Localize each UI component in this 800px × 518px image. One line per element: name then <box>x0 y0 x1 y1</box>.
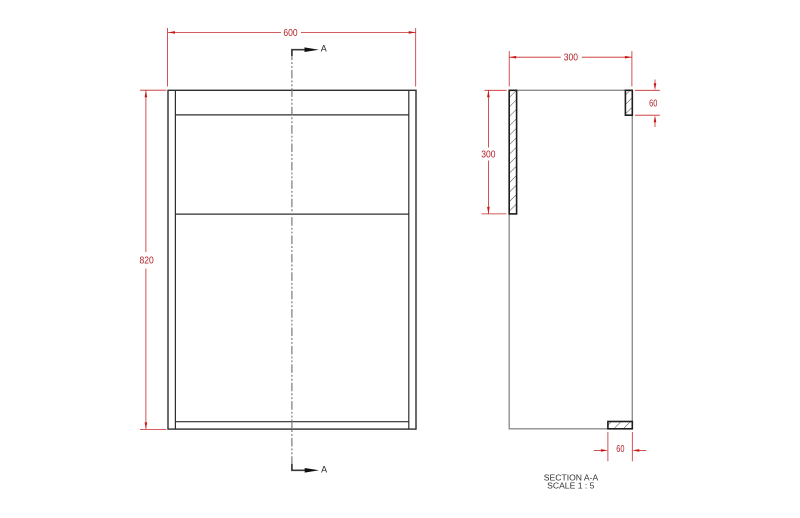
svg-text:SCALE 1 : 5: SCALE 1 : 5 <box>547 481 595 491</box>
svg-text:600: 600 <box>283 28 298 39</box>
svg-text:A: A <box>321 44 327 54</box>
svg-text:820: 820 <box>140 256 155 267</box>
svg-text:60: 60 <box>649 99 658 110</box>
svg-text:300: 300 <box>564 52 579 63</box>
svg-text:300: 300 <box>481 149 496 160</box>
svg-text:60: 60 <box>616 444 625 455</box>
svg-text:A: A <box>321 464 327 474</box>
